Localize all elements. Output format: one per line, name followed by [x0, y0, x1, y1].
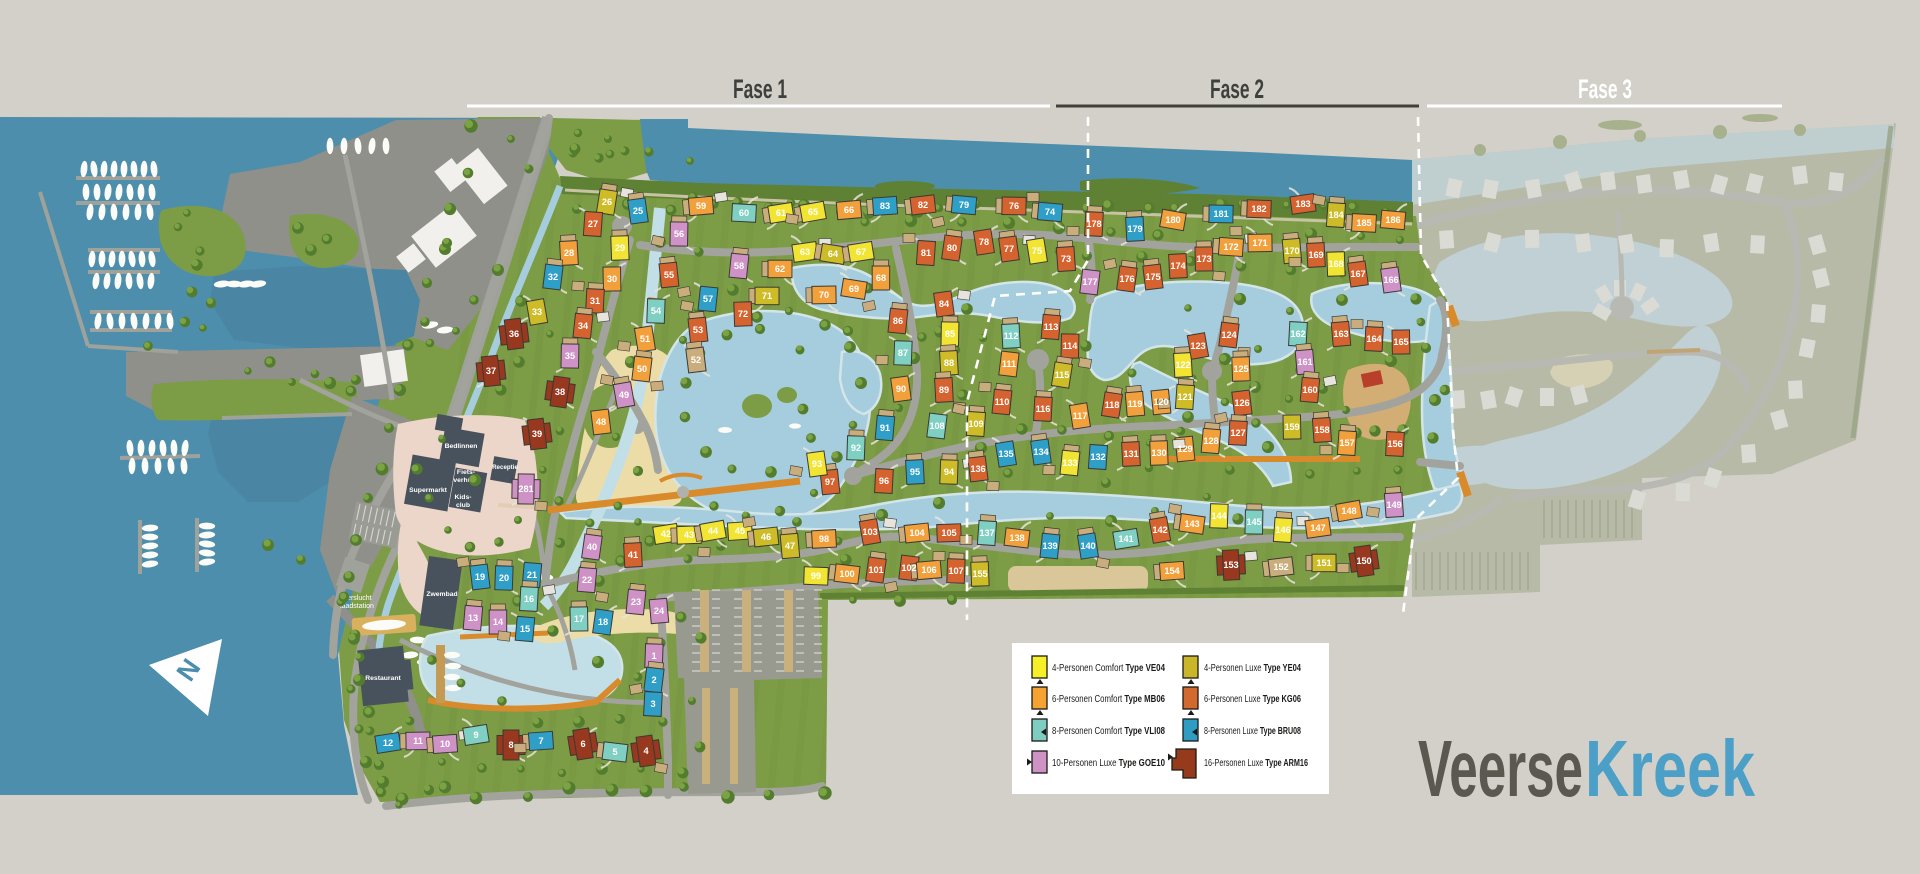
svg-text:56: 56 — [674, 229, 684, 239]
svg-text:104: 104 — [909, 528, 925, 538]
svg-text:92: 92 — [851, 443, 861, 453]
svg-text:160: 160 — [1302, 385, 1317, 395]
svg-text:12: 12 — [383, 738, 393, 748]
svg-text:152: 152 — [1273, 562, 1288, 572]
svg-text:149: 149 — [1386, 500, 1401, 510]
svg-text:154: 154 — [1164, 566, 1180, 576]
svg-text:44: 44 — [708, 526, 719, 536]
svg-text:165: 165 — [1393, 337, 1408, 347]
svg-text:107: 107 — [948, 566, 963, 576]
svg-text:128: 128 — [1203, 436, 1218, 446]
svg-text:131: 131 — [1123, 449, 1138, 459]
svg-text:40: 40 — [587, 542, 597, 552]
svg-text:71: 71 — [762, 291, 772, 301]
svg-text:15: 15 — [520, 624, 530, 634]
svg-text:16: 16 — [524, 594, 534, 604]
svg-text:167: 167 — [1350, 269, 1365, 279]
svg-text:19: 19 — [475, 572, 485, 582]
svg-text:79: 79 — [959, 200, 969, 210]
svg-text:108: 108 — [929, 421, 944, 431]
svg-text:8-Personen Luxe Type BRU08: 8-Personen Luxe Type BRU08 — [1204, 725, 1301, 737]
svg-text:22: 22 — [582, 575, 592, 585]
svg-text:81: 81 — [921, 248, 931, 258]
svg-text:49: 49 — [619, 390, 629, 400]
svg-text:66: 66 — [844, 205, 854, 215]
svg-text:182: 182 — [1251, 204, 1266, 214]
svg-text:126: 126 — [1234, 398, 1249, 408]
svg-text:6: 6 — [580, 739, 585, 749]
svg-text:club: club — [456, 502, 470, 509]
svg-text:38: 38 — [555, 387, 565, 397]
svg-text:139: 139 — [1042, 541, 1057, 551]
svg-text:121: 121 — [1177, 392, 1192, 402]
svg-text:102: 102 — [901, 563, 916, 573]
svg-text:74: 74 — [1045, 207, 1056, 217]
svg-text:96: 96 — [879, 476, 889, 486]
svg-text:77: 77 — [1004, 244, 1014, 254]
svg-text:60: 60 — [739, 208, 749, 218]
svg-text:41: 41 — [628, 550, 638, 560]
svg-text:Kreek: Kreek — [1585, 724, 1755, 813]
svg-text:143: 143 — [1184, 519, 1199, 529]
svg-text:4-Personen Luxe Type YE04: 4-Personen Luxe Type YE04 — [1204, 662, 1301, 674]
svg-text:185: 185 — [1356, 218, 1371, 228]
svg-text:158: 158 — [1314, 425, 1329, 435]
svg-text:62: 62 — [775, 264, 785, 274]
svg-text:9: 9 — [473, 730, 478, 740]
svg-text:5: 5 — [612, 747, 617, 757]
svg-text:148: 148 — [1341, 506, 1356, 516]
svg-text:73: 73 — [1061, 254, 1071, 264]
svg-text:125: 125 — [1233, 364, 1248, 374]
svg-text:Fase 2: Fase 2 — [1210, 74, 1264, 104]
svg-text:75: 75 — [1032, 246, 1042, 256]
svg-text:89: 89 — [939, 385, 949, 395]
svg-text:Fase 3: Fase 3 — [1578, 74, 1632, 104]
svg-text:147: 147 — [1310, 523, 1325, 533]
svg-text:46: 46 — [761, 532, 771, 542]
svg-text:42: 42 — [661, 529, 671, 539]
svg-text:94: 94 — [944, 467, 955, 477]
svg-text:123: 123 — [1190, 341, 1205, 351]
svg-text:171: 171 — [1252, 238, 1267, 248]
svg-text:119: 119 — [1128, 399, 1143, 409]
svg-text:64: 64 — [828, 249, 839, 259]
svg-text:172: 172 — [1223, 242, 1238, 252]
svg-text:130: 130 — [1151, 448, 1166, 458]
svg-text:184: 184 — [1328, 210, 1344, 220]
svg-text:50: 50 — [637, 364, 647, 374]
svg-text:90: 90 — [896, 384, 906, 394]
svg-text:32: 32 — [548, 272, 558, 282]
svg-text:140: 140 — [1080, 541, 1095, 551]
svg-text:157: 157 — [1339, 438, 1354, 448]
svg-text:168: 168 — [1328, 259, 1343, 269]
svg-text:87: 87 — [898, 348, 908, 358]
svg-text:Veerse: Veerse — [1418, 724, 1583, 813]
svg-text:34: 34 — [578, 321, 589, 331]
svg-text:103: 103 — [862, 527, 877, 537]
svg-text:Kids-: Kids- — [455, 494, 472, 501]
svg-text:175: 175 — [1145, 272, 1160, 282]
svg-text:156: 156 — [1387, 439, 1402, 449]
svg-text:97: 97 — [825, 477, 835, 487]
svg-text:65: 65 — [808, 207, 818, 217]
svg-text:142: 142 — [1152, 525, 1167, 535]
svg-text:129: 129 — [1177, 444, 1192, 454]
svg-text:163: 163 — [1333, 329, 1348, 339]
svg-text:111: 111 — [1002, 359, 1016, 369]
svg-text:106: 106 — [921, 565, 936, 575]
svg-text:86: 86 — [893, 316, 903, 326]
svg-text:84: 84 — [939, 299, 950, 309]
svg-text:112: 112 — [1004, 331, 1019, 341]
svg-text:134: 134 — [1033, 447, 1049, 457]
svg-text:21: 21 — [527, 570, 537, 580]
svg-text:93: 93 — [812, 459, 822, 469]
svg-text:95: 95 — [910, 467, 920, 477]
svg-text:29: 29 — [615, 243, 625, 253]
svg-text:30: 30 — [607, 274, 617, 284]
svg-text:57: 57 — [703, 294, 713, 304]
svg-text:70: 70 — [819, 290, 829, 300]
svg-text:83: 83 — [880, 201, 890, 211]
svg-text:14: 14 — [493, 617, 504, 627]
svg-text:82: 82 — [918, 200, 928, 210]
svg-text:23: 23 — [631, 597, 641, 607]
svg-text:laadstation: laadstation — [340, 603, 374, 610]
svg-text:4-Personen Comfort Type VE04: 4-Personen Comfort Type VE04 — [1052, 662, 1165, 674]
svg-text:98: 98 — [819, 534, 829, 544]
svg-text:3: 3 — [650, 699, 655, 709]
svg-text:155: 155 — [972, 569, 987, 579]
svg-text:100: 100 — [839, 569, 854, 579]
svg-text:6-Personen Luxe Type KG06: 6-Personen Luxe Type KG06 — [1204, 693, 1301, 705]
svg-text:186: 186 — [1385, 215, 1400, 225]
svg-text:51: 51 — [640, 334, 650, 344]
svg-text:118: 118 — [1105, 400, 1120, 410]
svg-text:52: 52 — [691, 355, 701, 365]
svg-text:159: 159 — [1284, 422, 1299, 432]
svg-text:36: 36 — [509, 329, 519, 339]
svg-text:53: 53 — [693, 325, 703, 335]
svg-text:146: 146 — [1275, 525, 1290, 535]
svg-text:183: 183 — [1295, 199, 1310, 209]
svg-text:117: 117 — [1073, 411, 1088, 421]
svg-text:133: 133 — [1062, 458, 1077, 468]
svg-text:48: 48 — [596, 417, 606, 427]
svg-text:58: 58 — [734, 261, 744, 271]
svg-text:31: 31 — [590, 296, 600, 306]
svg-text:137: 137 — [979, 528, 994, 538]
svg-text:78: 78 — [979, 237, 989, 247]
svg-text:69: 69 — [849, 284, 859, 294]
svg-text:169: 169 — [1308, 250, 1323, 260]
svg-text:Bedlinnen: Bedlinnen — [445, 443, 478, 450]
svg-text:124: 124 — [1221, 330, 1237, 340]
svg-text:4: 4 — [643, 746, 649, 756]
svg-text:177: 177 — [1082, 277, 1097, 287]
svg-text:63: 63 — [800, 247, 810, 257]
svg-text:6-Personen Comfort Type MB06: 6-Personen Comfort Type MB06 — [1052, 693, 1165, 705]
svg-text:281: 281 — [518, 484, 533, 494]
svg-text:166: 166 — [1383, 275, 1398, 285]
svg-text:151: 151 — [1316, 558, 1331, 568]
svg-text:67: 67 — [856, 247, 866, 257]
svg-text:115: 115 — [1055, 370, 1070, 380]
svg-text:181: 181 — [1213, 209, 1228, 219]
svg-text:145: 145 — [1246, 517, 1261, 527]
svg-text:135: 135 — [998, 449, 1013, 459]
svg-text:Fase 1: Fase 1 — [733, 74, 787, 104]
svg-text:37: 37 — [486, 366, 496, 376]
svg-text:Zwembad: Zwembad — [426, 591, 457, 598]
svg-text:Receptie: Receptie — [492, 464, 518, 471]
svg-text:Restaurant: Restaurant — [365, 675, 401, 682]
svg-text:161: 161 — [1297, 357, 1312, 367]
svg-text:173: 173 — [1196, 254, 1211, 264]
svg-text:33: 33 — [532, 307, 542, 317]
svg-text:144: 144 — [1211, 511, 1227, 521]
svg-text:101: 101 — [868, 565, 883, 575]
svg-text:11: 11 — [413, 736, 423, 746]
svg-text:54: 54 — [651, 306, 662, 316]
svg-text:43: 43 — [684, 530, 694, 540]
svg-text:26: 26 — [602, 197, 612, 207]
svg-text:45: 45 — [735, 526, 745, 536]
svg-text:85: 85 — [945, 329, 955, 339]
svg-text:180: 180 — [1165, 215, 1180, 225]
svg-text:164: 164 — [1366, 334, 1382, 344]
svg-text:27: 27 — [588, 219, 598, 229]
svg-text:10: 10 — [440, 739, 450, 749]
svg-text:99: 99 — [811, 571, 821, 581]
svg-text:68: 68 — [876, 273, 886, 283]
svg-text:8-Personen Comfort Type VLI08: 8-Personen Comfort Type VLI08 — [1052, 725, 1165, 737]
svg-text:1: 1 — [651, 651, 656, 661]
svg-text:141: 141 — [1118, 534, 1133, 544]
svg-text:80: 80 — [947, 243, 957, 253]
svg-text:153: 153 — [1223, 560, 1238, 570]
svg-text:35: 35 — [565, 351, 575, 361]
svg-text:59: 59 — [696, 201, 706, 211]
svg-text:72: 72 — [738, 309, 748, 319]
svg-text:91: 91 — [880, 423, 890, 433]
svg-text:28: 28 — [564, 248, 574, 258]
svg-text:13: 13 — [468, 613, 478, 623]
svg-text:170: 170 — [1284, 246, 1299, 256]
svg-text:88: 88 — [944, 358, 954, 368]
svg-text:17: 17 — [574, 614, 584, 624]
svg-text:47: 47 — [785, 541, 795, 551]
svg-text:127: 127 — [1230, 428, 1245, 438]
svg-text:113: 113 — [1044, 322, 1059, 332]
svg-text:61: 61 — [776, 208, 786, 218]
svg-text:110: 110 — [995, 397, 1010, 407]
svg-text:Supermarkt: Supermarkt — [409, 487, 448, 494]
svg-text:150: 150 — [1356, 556, 1371, 566]
svg-text:24: 24 — [654, 606, 665, 616]
svg-text:179: 179 — [1127, 224, 1142, 234]
svg-text:76: 76 — [1009, 201, 1019, 211]
svg-text:136: 136 — [970, 464, 985, 474]
svg-text:116: 116 — [1036, 404, 1051, 414]
svg-text:8: 8 — [508, 740, 513, 750]
svg-text:138: 138 — [1009, 533, 1024, 543]
svg-text:122: 122 — [1175, 360, 1190, 370]
svg-text:176: 176 — [1119, 274, 1134, 284]
svg-text:18: 18 — [598, 617, 608, 627]
svg-text:120: 120 — [1153, 397, 1168, 407]
svg-text:132: 132 — [1090, 452, 1105, 462]
svg-text:16-Personen Luxe Type ARM16: 16-Personen Luxe Type ARM16 — [1204, 757, 1308, 769]
svg-text:25: 25 — [633, 206, 643, 216]
svg-text:2: 2 — [651, 675, 656, 685]
svg-text:174: 174 — [1170, 261, 1186, 271]
svg-text:162: 162 — [1290, 329, 1305, 339]
svg-text:109: 109 — [968, 419, 983, 429]
svg-text:105: 105 — [941, 528, 956, 538]
svg-text:7: 7 — [538, 736, 543, 746]
svg-text:39: 39 — [532, 429, 542, 439]
svg-text:20: 20 — [499, 573, 509, 583]
svg-text:114: 114 — [1063, 341, 1079, 351]
svg-text:55: 55 — [664, 270, 674, 280]
svg-text:10-Personen Luxe Type GOE10: 10-Personen Luxe Type GOE10 — [1052, 757, 1165, 769]
